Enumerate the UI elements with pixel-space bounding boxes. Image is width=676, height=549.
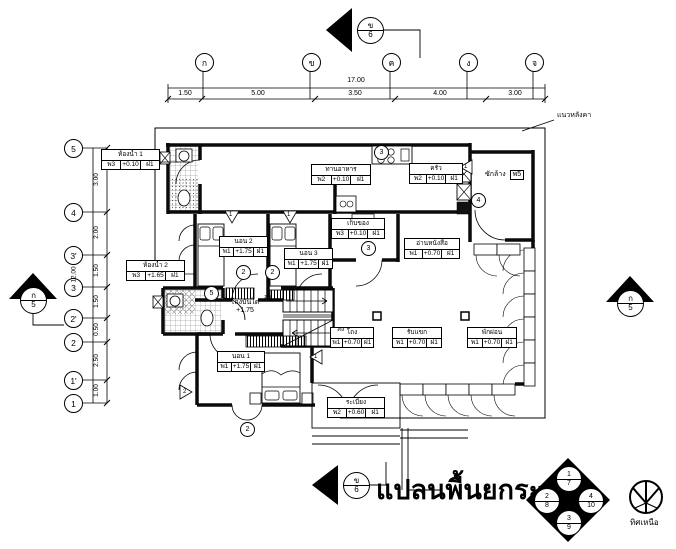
room-name: ระเบียง — [328, 398, 384, 409]
wall-code: ฝ1 — [427, 339, 441, 347]
section-marker-top: ข 6 — [357, 17, 384, 44]
grid-row-bubble-3p: 3' — [64, 246, 83, 265]
floor-code: พ2 — [328, 409, 347, 417]
room-label-balcony: ระเบียง พ2+0.60ฝ1 — [327, 397, 385, 418]
floor-level: +0.70 — [483, 339, 502, 347]
section-letter: ข — [358, 22, 383, 30]
floor-level: +1.65 — [146, 272, 165, 280]
window-tag-number: 2 — [183, 389, 186, 395]
floor-level: +0.10 — [332, 176, 352, 184]
door-tag-number: 4 — [477, 197, 481, 204]
floor-code: พ1 — [218, 363, 232, 371]
room-name: อ่านหนังสือ — [405, 239, 459, 250]
grid-col-label: ง — [466, 56, 470, 70]
section-letter: ก — [618, 295, 643, 303]
room-label-bath1: ห้องน้ำ 1 พ3+0.10ฝ1 — [101, 149, 160, 170]
wall-code: ฝ1 — [442, 250, 459, 258]
grid-row-label: 2' — [70, 314, 76, 324]
section-number: 6 — [358, 30, 383, 39]
dim-seg-h5: 3.00 — [508, 90, 522, 98]
north-symbol — [630, 481, 662, 513]
floor-code: พ1 — [393, 339, 408, 347]
detail-circle-right: 4 10 — [578, 488, 604, 514]
floor-level: +0.10 — [349, 230, 368, 238]
grid-col-label: จ — [532, 56, 537, 70]
grid-row-bubble-1: 1 — [64, 394, 83, 413]
window-tag-number: 1 — [314, 354, 317, 360]
floor-code: พ1 — [468, 339, 483, 347]
door-tag-number: 3 — [380, 149, 384, 156]
north-label: ทิศเหนือ — [630, 518, 659, 527]
detail-circle-left: 2 8 — [534, 488, 560, 514]
dim-seg-v4: 1.50 — [93, 295, 100, 308]
door-tag: 2 — [240, 422, 255, 437]
grid-row-label: 1 — [71, 399, 76, 409]
room-label-reading: อ่านหนังสือ พ1+0.70ฝ1 — [404, 238, 460, 259]
section-marker-bottom: ข 6 — [343, 472, 370, 499]
room-label-bed3: นอน 3 พ1+1.75ฝ1 — [284, 248, 333, 269]
grid-col-label: ค — [389, 56, 395, 70]
detail-number: 1 — [557, 471, 581, 479]
doors — [176, 147, 505, 420]
grid-col-bubble-d: ง — [459, 53, 478, 72]
grid-row-label: 3' — [70, 251, 76, 261]
floor-plan-sheet: ก ข ค ง จ 17.00 1.50 5.00 3.50 4.00 3.00… — [0, 0, 676, 549]
floor-code: พ5 — [510, 170, 525, 180]
room-label-dining: ทานอาหาร พ2+0.10ฝ1 — [311, 164, 371, 185]
door-tag: 5 — [204, 286, 219, 301]
door-tag-number: 5 — [210, 290, 214, 297]
dim-seg-h2: 5.00 — [251, 90, 265, 98]
grid-row-label: 5 — [71, 144, 76, 154]
room-name: เก็บของ — [332, 219, 384, 230]
room-name: พักผ่อน — [468, 328, 516, 339]
grid-row-label: 4 — [71, 208, 76, 218]
wall-code: ฝ1 — [502, 339, 516, 347]
window-tag-number: 1 — [229, 212, 232, 218]
wall-code: ฝ1 — [251, 363, 264, 371]
floor-level: +1.75 — [234, 248, 253, 256]
wall-code: ฝ1 — [319, 260, 332, 268]
door-tag: 4 — [471, 193, 486, 208]
floor-level: +0.70 — [408, 339, 427, 347]
room-name: นอน 2 — [220, 237, 267, 248]
dim-total-vertical: 12.00 — [71, 266, 78, 282]
floor-code: พ2 — [312, 176, 332, 184]
door-tag-number: 2 — [271, 269, 275, 276]
dim-seg-v6: 2.50 — [93, 354, 100, 367]
dim-seg-h3: 3.50 — [348, 90, 362, 98]
door-tag-number: 3 — [367, 245, 371, 252]
section-number: 5 — [21, 300, 46, 309]
dim-seg-v3: 1.50 — [93, 264, 100, 277]
detail-number: 4 — [579, 493, 603, 501]
roof-note: แนวหลังคา — [557, 112, 591, 120]
room-label-bed2: นอน 2 พ1+1.75ฝ1 — [219, 236, 268, 257]
wall-code: ฝ1 — [254, 248, 267, 256]
floor-level: +1.75 — [232, 363, 251, 371]
grid-row-label: 1' — [70, 376, 76, 386]
grid-row-bubble-2: 2 — [64, 333, 83, 352]
grid-col-bubble-e: จ — [525, 53, 544, 72]
grid-row-label: 3 — [71, 283, 76, 293]
detail-number: 10 — [579, 501, 603, 510]
floor-code: พ1 — [220, 248, 234, 256]
floor-code: พ3 — [127, 272, 146, 280]
room-name: ทานอาหาร — [312, 165, 370, 176]
door-tag: 2 — [236, 265, 251, 280]
room-label-laundry: ซักล้าง พ5 — [485, 170, 524, 180]
floor-level: +1.75 — [299, 260, 318, 268]
grid-row-bubble-1p: 1' — [64, 371, 83, 390]
room-name: โถงบันได — [222, 299, 268, 307]
door-tag-number: 2 — [246, 426, 250, 433]
door-tag-number: 2 — [242, 269, 246, 276]
grid-col-bubble-c: ค — [382, 53, 401, 72]
room-name: ห้องน้ำ 1 — [102, 150, 159, 161]
grid-col-bubble-b: ข — [302, 53, 321, 72]
grid-row-label: 2 — [71, 338, 76, 348]
wall-code: ฝ1 — [362, 339, 373, 347]
dim-seg-h1: 1.50 — [178, 90, 192, 98]
grid-col-label: ก — [202, 56, 207, 70]
dim-seg-v1: 3.00 — [93, 173, 100, 186]
door-tag: 3 — [374, 145, 389, 160]
dim-seg-v5: 0.50 — [93, 323, 100, 336]
section-marker-right: ก 5 — [617, 290, 644, 317]
stair-down-label-2: ลง — [337, 326, 344, 333]
grid-row-bubble-4: 4 — [64, 203, 83, 222]
detail-number: 8 — [535, 501, 559, 510]
detail-number: 7 — [557, 479, 581, 488]
floor-level: +0.70 — [343, 339, 362, 347]
room-name: ครัว — [410, 164, 462, 175]
room-label-bath2: ห้องน้ำ 2 พ3+1.65ฝ1 — [126, 260, 185, 281]
floor-code: พ2 — [410, 175, 427, 183]
room-label-bed1: นอน 1 พ1+1.75ฝ1 — [217, 351, 265, 372]
floor-code: พ1 — [405, 250, 423, 258]
floor-code: พ3 — [102, 161, 121, 169]
grid-col-label: ข — [309, 56, 315, 70]
top-dimensions — [165, 71, 548, 103]
wall-code: ฝ1 — [446, 175, 462, 183]
window-tag-number: 1 — [287, 212, 290, 218]
floor-level: +0.60 — [347, 409, 366, 417]
grid-row-bubble-2p: 2' — [64, 309, 83, 328]
wall-code: ฝ1 — [141, 161, 159, 169]
floor-code: พ1 — [331, 339, 343, 347]
detail-circle-bottom: 3 9 — [556, 510, 582, 536]
door-tag: 2 — [265, 265, 280, 280]
room-label-stairhall: โถงบันได +1.75 — [222, 299, 268, 315]
floor-level: +0.10 — [121, 161, 140, 169]
wall-code: ฝ1 — [166, 272, 184, 280]
grid-col-bubble-a: ก — [195, 53, 214, 72]
room-name: นอน 1 — [218, 352, 264, 363]
dim-total-horizontal: 17.00 — [347, 77, 365, 85]
section-marker-left: ก 5 — [20, 287, 47, 314]
dim-seg-h4: 4.00 — [433, 90, 447, 98]
room-label-storage: เก็บของ พ3+0.10ฝ1 — [331, 218, 385, 239]
room-name: นอน 3 — [285, 249, 332, 260]
detail-number: 2 — [535, 493, 559, 501]
section-letter: ข — [344, 477, 369, 485]
detail-number: 3 — [557, 515, 581, 523]
section-number: 6 — [344, 485, 369, 494]
floor-level: +0.10 — [427, 175, 446, 183]
room-name: ห้องน้ำ 2 — [127, 261, 184, 272]
wall-code: ฝ1 — [368, 230, 384, 238]
detail-number: 9 — [557, 523, 581, 532]
wall-code: ฝ1 — [366, 409, 384, 417]
wall-code: ฝ1 — [351, 176, 370, 184]
room-name: รับแขก — [393, 328, 441, 339]
floor-level: +0.70 — [423, 250, 442, 258]
floor-code: พ3 — [332, 230, 349, 238]
window-tag-number: 1 — [464, 164, 467, 170]
room-label-relax: พักผ่อน พ1+0.70ฝ1 — [467, 327, 517, 348]
stair-down-label-1: ลง — [264, 294, 271, 301]
grid-row-bubble-5: 5 — [64, 139, 83, 158]
door-tag: 3 — [361, 241, 376, 256]
detail-circle-top: 1 7 — [556, 466, 582, 492]
room-name: ซักล้าง — [485, 171, 506, 179]
dim-seg-v2: 2.00 — [93, 226, 100, 239]
room-label-living: รับแขก พ1+0.70ฝ1 — [392, 327, 442, 348]
section-number: 5 — [618, 303, 643, 312]
floor-level: +1.75 — [222, 307, 268, 315]
columns — [373, 312, 469, 320]
section-letter: ก — [21, 292, 46, 300]
floor-code: พ1 — [285, 260, 299, 268]
room-label-kitchen: ครัว พ2+0.10ฝ1 — [409, 163, 463, 184]
dim-seg-v7: 1.00 — [93, 384, 100, 397]
